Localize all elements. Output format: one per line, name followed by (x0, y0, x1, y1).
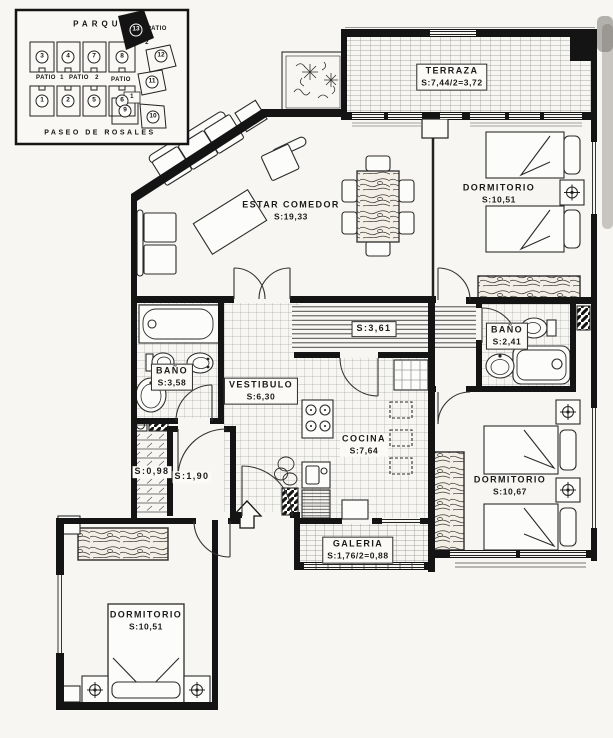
dining-chair (399, 180, 414, 202)
door-paso (178, 429, 226, 477)
armchair (261, 136, 308, 181)
bidet (187, 353, 213, 373)
dining-chair (366, 156, 390, 171)
washbasin (136, 378, 166, 412)
coffee-table (193, 190, 266, 254)
dining-chair (342, 180, 357, 202)
window-dormitorio-inf (56, 572, 64, 656)
window-kitchen-galeria (382, 520, 420, 523)
wardrobe (78, 528, 168, 560)
closet-shelves (137, 432, 169, 514)
bathtub (513, 346, 570, 384)
floorplan-page: { "inset": { "park_label": "PARQUE", "st… (0, 0, 613, 738)
stove (302, 400, 333, 438)
toilet (521, 318, 556, 338)
dining-chair (342, 212, 357, 234)
dining-chair (366, 241, 390, 256)
washbasin (486, 354, 514, 378)
kitchen-sink (302, 462, 330, 488)
galeria-appliance (342, 500, 368, 519)
wardrobe (432, 452, 464, 550)
window-right-wall-sup (591, 142, 597, 214)
pillow (560, 508, 576, 546)
pillow (564, 136, 580, 174)
double-door-living (234, 268, 290, 299)
dining-chair (399, 212, 414, 234)
galeria-floor (300, 524, 428, 565)
bed (486, 206, 564, 252)
key-plan (16, 10, 188, 144)
bed (484, 426, 558, 474)
pillow (112, 682, 180, 698)
dormitorio-sup-furniture (478, 132, 584, 302)
window-dormitorio-der (450, 551, 586, 567)
window-right-wall-der (591, 408, 597, 528)
toilet (146, 353, 174, 371)
dining-set (342, 156, 414, 256)
pasillo-floor (292, 306, 476, 351)
terraza-floor (347, 37, 591, 112)
floorplan-drawing (0, 0, 613, 738)
door-dormitorio-der (438, 392, 470, 424)
dormitorio-der-furniture (432, 400, 580, 550)
pillow (560, 430, 576, 470)
bed (486, 132, 564, 178)
duct-shaft (577, 306, 590, 330)
window-galeria (304, 563, 424, 569)
planter-plant (282, 52, 344, 112)
door-dormitorio-sup (438, 268, 470, 300)
sofa-left-section (137, 210, 176, 276)
pillow (564, 210, 580, 248)
dormitorio-inf-furniture (58, 516, 210, 704)
fridge (394, 360, 428, 390)
kitchen-cabinet (302, 490, 330, 518)
dining-table (357, 171, 399, 242)
window-terraza-top (430, 30, 476, 36)
